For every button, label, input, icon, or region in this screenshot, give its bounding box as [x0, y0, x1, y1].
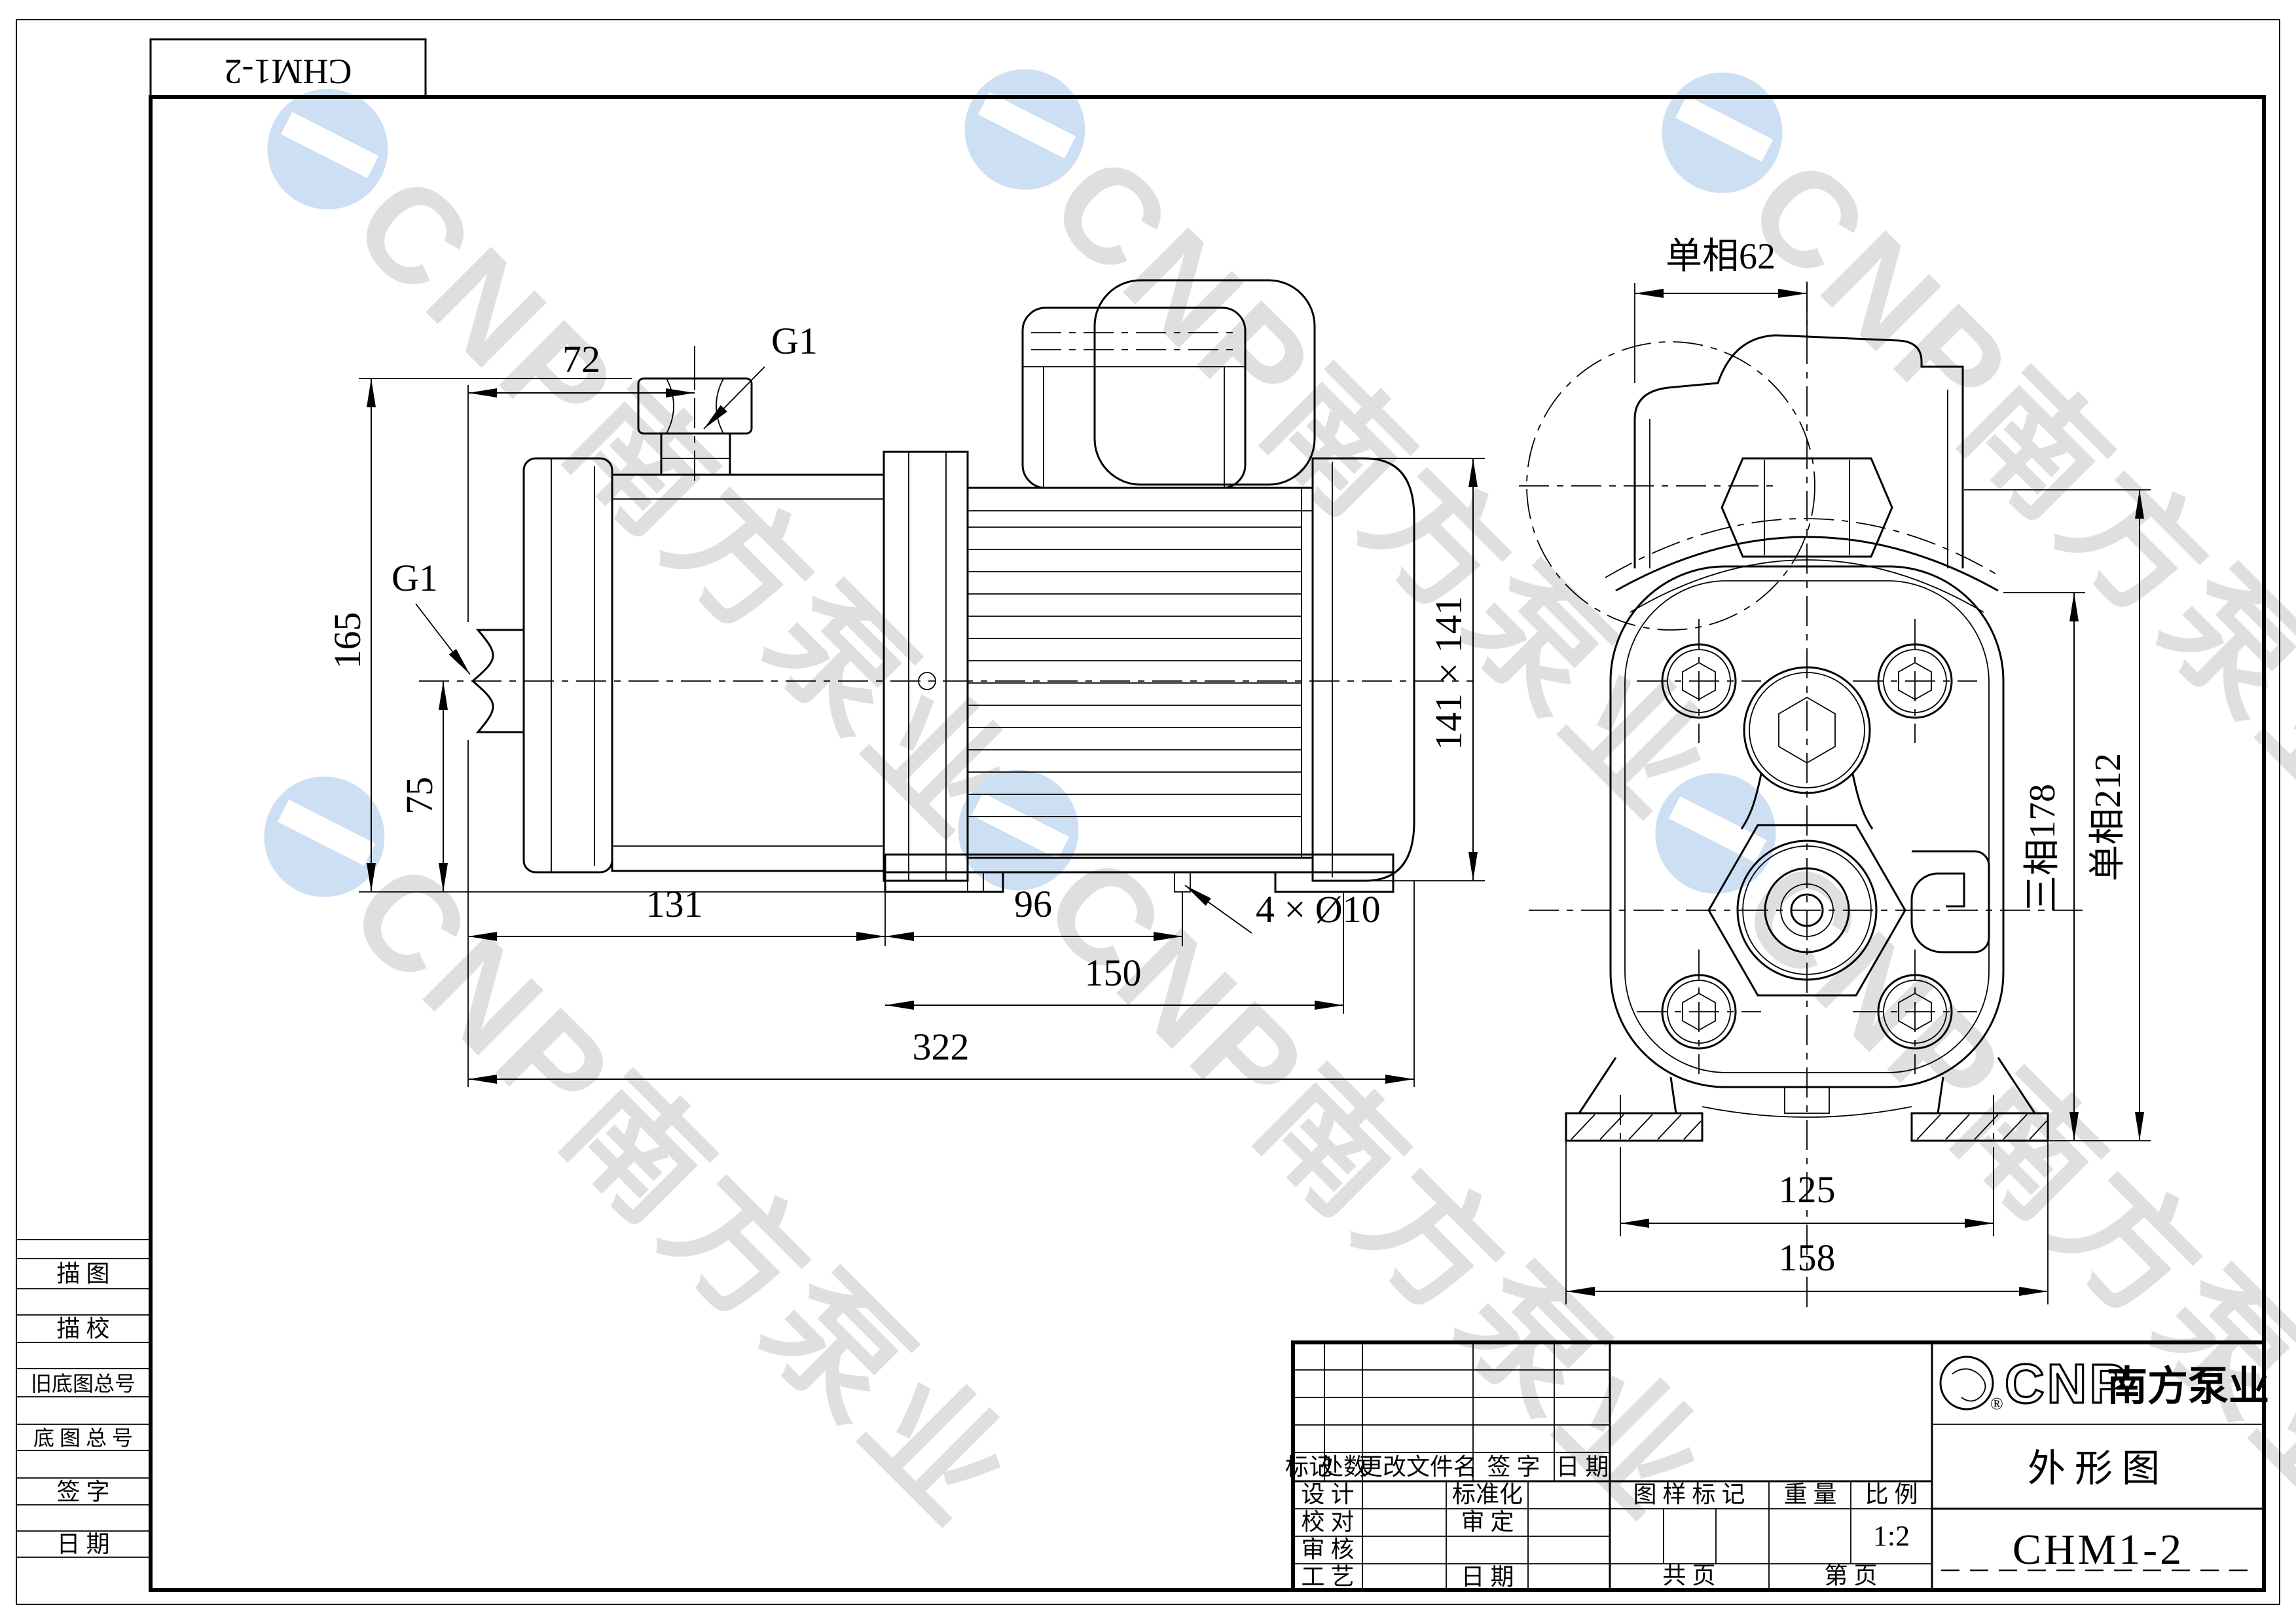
stamp-weight-label: 重 量 — [1783, 1481, 1836, 1507]
dim62-text: 单相62 — [1666, 236, 1776, 277]
role-process-label: 工 艺 — [1301, 1564, 1354, 1590]
dim96-text: 96 — [1014, 883, 1052, 925]
watermarks: CNP南方泵业 CNP南方泵业 CNP南方泵业 CNP南方泵业 CNP南方泵业 … — [229, 33, 2296, 1553]
motor-cap-arc-phantom — [1605, 519, 2002, 578]
role-review-label: 审 核 — [1301, 1536, 1354, 1562]
cnp-logo-glyph-swirl — [1952, 1369, 1986, 1401]
watermark-text: CNP南方泵业 — [326, 147, 1044, 865]
doc-type-title: 外形图 — [2028, 1447, 2169, 1490]
watermark-text: CNP南方泵业 — [1017, 828, 1735, 1546]
doc-number-text: CHM1-2 — [224, 52, 352, 92]
doc-number-box: CHM1-2 — [151, 39, 426, 97]
margin-row-sign: 签 字 — [56, 1479, 109, 1505]
dim212-text: 单相212 — [2088, 753, 2128, 881]
dim178-text: 三相178 — [2022, 784, 2063, 912]
dim322-text: 322 — [913, 1025, 970, 1068]
margin-row-trace-check: 描 校 — [56, 1316, 109, 1342]
watermark-instance: CNP南方泵业 — [229, 741, 1041, 1553]
rev-date-label: 日 期 — [1556, 1454, 1609, 1480]
brand-cn-text: 南方泵业 — [2107, 1364, 2269, 1409]
left-foot-pad — [1566, 1113, 1702, 1141]
dim125-text: 125 — [1779, 1168, 1836, 1211]
dim150-text: 150 — [1085, 951, 1142, 994]
pages-current-label: 第 页 — [1824, 1562, 1877, 1589]
dim165-text: 165 — [326, 612, 369, 669]
rev-file-label: 更改文件名 — [1359, 1454, 1477, 1480]
margin-row-trace: 描 图 — [56, 1261, 109, 1287]
dim131-text: 131 — [646, 883, 703, 925]
g1-discharge-text: G1 — [771, 320, 818, 362]
role-approve-label: 审 定 — [1461, 1509, 1514, 1535]
title-block: 标记 处数 更改文件名 签 字 日 期 设 计 标准化 校 对 审 定 审 核 … — [1285, 1342, 2269, 1590]
margin-row-master: 底 图 总 号 — [33, 1426, 133, 1450]
role-check-label: 校 对 — [1301, 1509, 1354, 1535]
pages-total-label: 共 页 — [1662, 1562, 1715, 1589]
role-standardize-label: 标准化 — [1452, 1481, 1523, 1507]
g1-suction-text: G1 — [392, 557, 438, 599]
margin-info-table: 描 图 描 校 旧底图总号 底 图 总 号 签 字 日 期 — [16, 1240, 151, 1557]
watermark-instance: CNP南方泵业 — [930, 33, 1741, 845]
registered-mark: ® — [1990, 1394, 2003, 1413]
scale-value: 1:2 — [1873, 1520, 1910, 1552]
dim75-text: 75 — [398, 777, 441, 815]
dim62-extensions — [1635, 283, 1807, 383]
dim141-text: 141 × 141 — [1427, 596, 1470, 750]
drawing-sheet: CNP南方泵业 CNP南方泵业 CNP南方泵业 CNP南方泵业 CNP南方泵业 … — [0, 0, 2296, 1624]
margin-row-date: 日 期 — [56, 1531, 109, 1557]
role-date-label: 日 期 — [1461, 1564, 1514, 1590]
pump-head-cover-lines — [551, 458, 594, 872]
stamp-mark-label: 图 样 标 记 — [1633, 1481, 1745, 1507]
dim72-text: 72 — [562, 338, 600, 380]
margin-row-old-master: 旧底图总号 — [31, 1372, 136, 1395]
margin-table-grid — [16, 1240, 151, 1557]
watermark-instance: CNP南方泵业 — [232, 53, 1044, 865]
dim158-text: 158 — [1779, 1236, 1836, 1279]
left-foot-flange — [1579, 1058, 1676, 1113]
left-foot-hatch — [1571, 1115, 1701, 1139]
watermark-text: CNP南方泵业 — [323, 834, 1041, 1553]
stamp-scale-label: 比 例 — [1865, 1481, 1918, 1507]
model-number: CHM1-2 — [2013, 1526, 2184, 1574]
rev-sign-label: 签 字 — [1487, 1454, 1540, 1480]
holes-text: 4 × Ø10 — [1256, 888, 1381, 931]
g1-discharge-leader — [704, 367, 765, 429]
corner-bolt — [1853, 619, 1977, 743]
g1-suction-leader — [416, 604, 470, 674]
role-design-label: 设 计 — [1301, 1481, 1354, 1507]
